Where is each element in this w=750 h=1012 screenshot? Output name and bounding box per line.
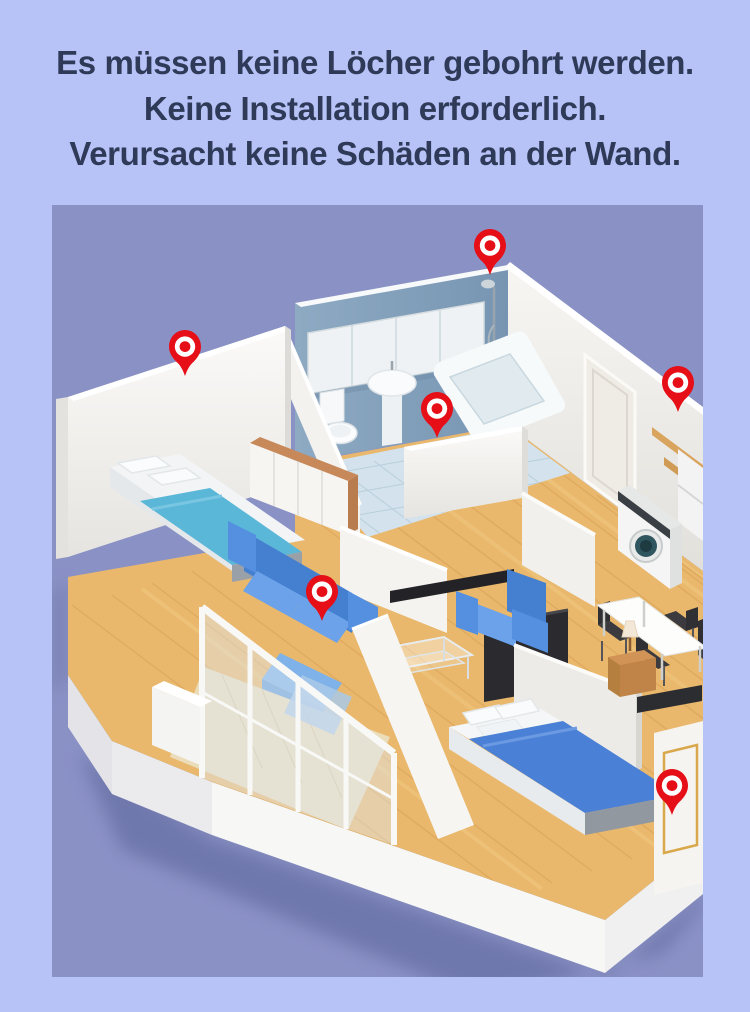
headline: Es müssen keine Löcher gebohrt werden. K… xyxy=(0,40,750,177)
headline-line-2: Keine Installation erforderlich. xyxy=(0,86,750,132)
floorplan-svg xyxy=(52,205,703,977)
marketing-banner: Es müssen keine Löcher gebohrt werden. K… xyxy=(0,0,750,1012)
floorplan-image xyxy=(52,205,703,977)
headline-line-3: Verursacht keine Schäden an der Wand. xyxy=(0,131,750,177)
headline-line-1: Es müssen keine Löcher gebohrt werden. xyxy=(0,40,750,86)
